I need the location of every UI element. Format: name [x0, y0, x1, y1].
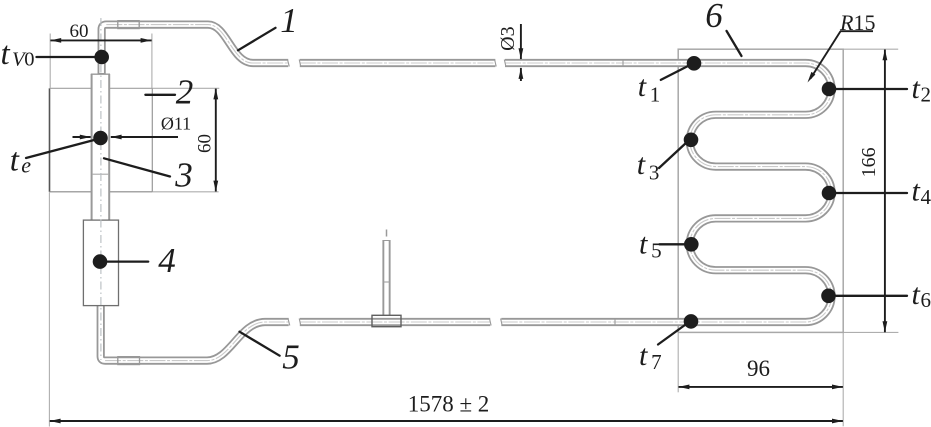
svg-text:Ø11: Ø11: [161, 113, 191, 133]
svg-text:e: e: [21, 153, 31, 178]
svg-text:7: 7: [651, 350, 662, 374]
svg-text:0: 0: [24, 49, 34, 71]
svg-text:60: 60: [195, 134, 216, 153]
svg-text:3: 3: [174, 156, 193, 195]
svg-text:6: 6: [705, 0, 723, 35]
svg-text:5: 5: [282, 337, 300, 376]
svg-text:t: t: [639, 339, 648, 372]
svg-text:5: 5: [651, 239, 662, 263]
svg-text:Ø3: Ø3: [497, 26, 519, 50]
svg-text:1578 ± 2: 1578 ± 2: [408, 392, 490, 417]
svg-text:3: 3: [649, 161, 660, 185]
svg-text:t: t: [912, 278, 921, 311]
svg-text:R15: R15: [839, 10, 875, 35]
svg-text:1: 1: [280, 1, 298, 40]
svg-text:2: 2: [176, 73, 194, 112]
svg-text:t: t: [638, 70, 647, 103]
svg-text:2: 2: [921, 82, 931, 106]
svg-text:4: 4: [158, 241, 176, 280]
svg-text:t: t: [10, 143, 20, 179]
svg-text:60: 60: [70, 21, 89, 42]
svg-text:t: t: [639, 228, 648, 261]
svg-text:t: t: [1, 36, 11, 72]
svg-text:t: t: [912, 72, 921, 105]
svg-text:6: 6: [921, 288, 931, 312]
svg-text:t: t: [912, 175, 921, 208]
svg-text:t: t: [637, 148, 646, 181]
svg-text:4: 4: [921, 185, 931, 209]
svg-text:166: 166: [858, 147, 880, 177]
svg-text:96: 96: [747, 356, 770, 381]
svg-text:1: 1: [650, 83, 661, 107]
